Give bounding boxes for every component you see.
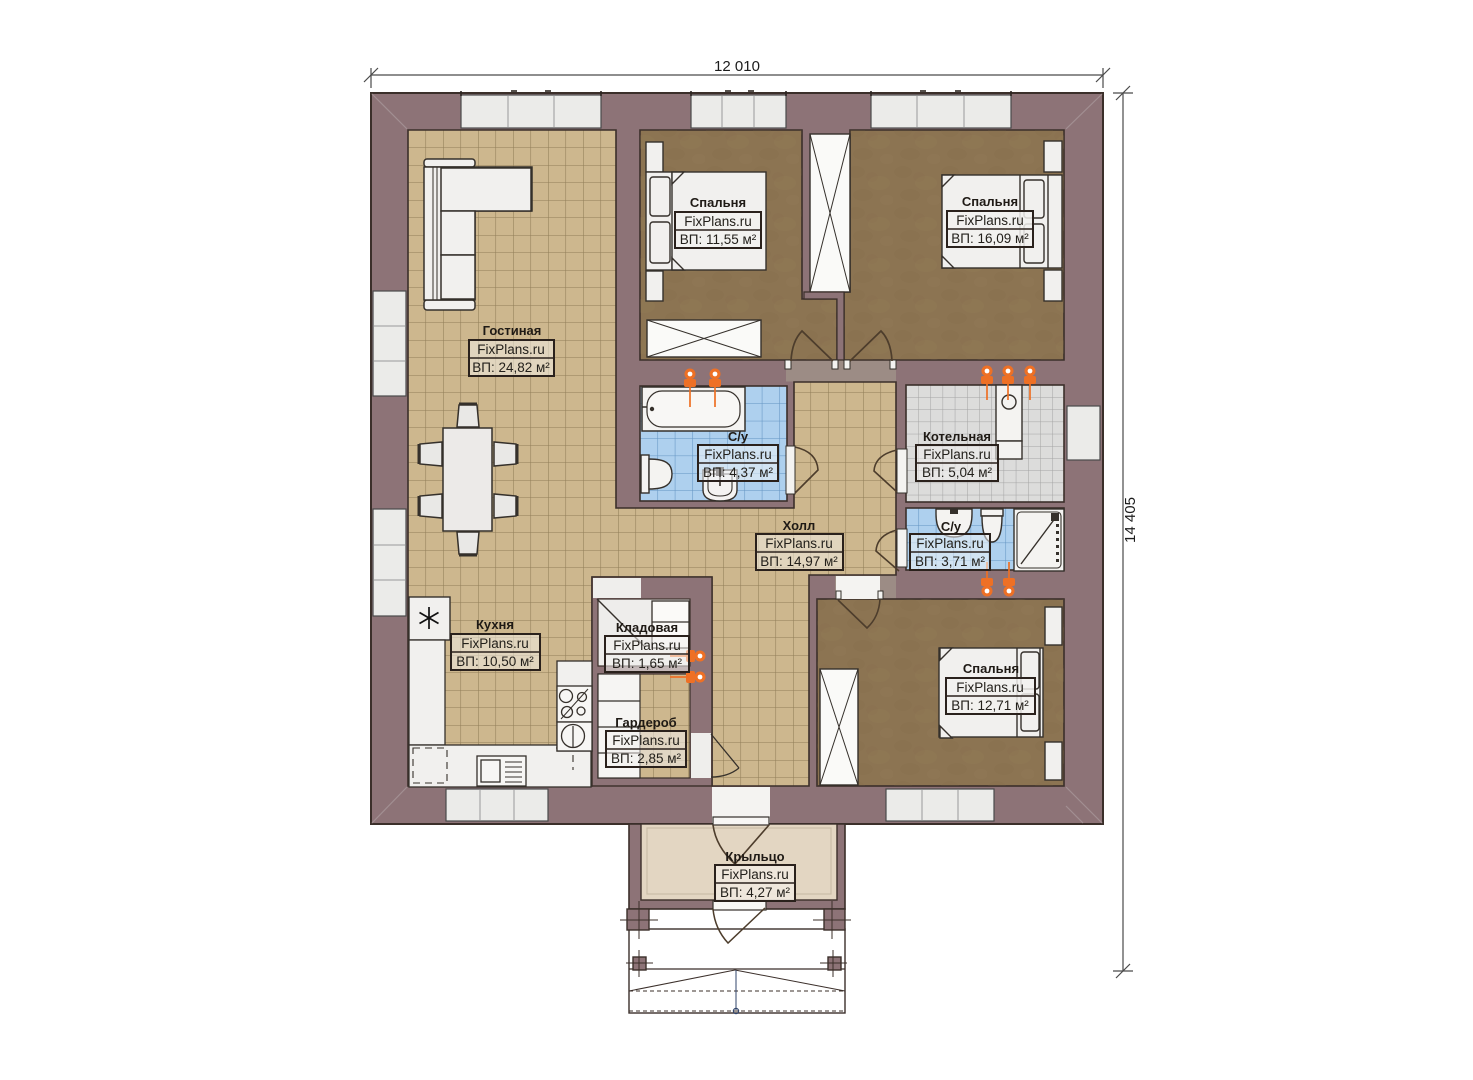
svg-text:Гардероб: Гардероб xyxy=(615,715,676,730)
svg-text:FixPlans.ru: FixPlans.ru xyxy=(612,733,680,748)
svg-text:FixPlans.ru: FixPlans.ru xyxy=(704,447,772,462)
svg-text:ВП: 16,09 м²: ВП: 16,09 м² xyxy=(951,231,1029,246)
svg-text:С/у: С/у xyxy=(728,429,749,444)
svg-text:FixPlans.ru: FixPlans.ru xyxy=(721,867,789,882)
svg-text:FixPlans.ru: FixPlans.ru xyxy=(684,214,752,229)
svg-text:Гостиная: Гостиная xyxy=(483,323,542,338)
svg-text:FixPlans.ru: FixPlans.ru xyxy=(956,213,1024,228)
svg-text:FixPlans.ru: FixPlans.ru xyxy=(613,638,681,653)
svg-text:ВП: 24,82 м²: ВП: 24,82 м² xyxy=(472,360,550,375)
svg-text:14 405: 14 405 xyxy=(1122,497,1139,543)
svg-text:Кладовая: Кладовая xyxy=(616,620,678,635)
svg-text:ВП: 2,85 м²: ВП: 2,85 м² xyxy=(611,751,682,766)
svg-text:ВП: 1,65 м²: ВП: 1,65 м² xyxy=(612,656,683,671)
svg-text:ВП: 5,04 м²: ВП: 5,04 м² xyxy=(922,465,993,480)
svg-text:Котельная: Котельная xyxy=(923,429,991,444)
svg-text:FixPlans.ru: FixPlans.ru xyxy=(765,536,833,551)
svg-text:ВП: 12,71 м²: ВП: 12,71 м² xyxy=(951,698,1029,713)
svg-text:ВП: 3,71 м²: ВП: 3,71 м² xyxy=(915,554,986,569)
svg-text:ВП: 11,55 м²: ВП: 11,55 м² xyxy=(680,232,757,247)
svg-text:FixPlans.ru: FixPlans.ru xyxy=(956,680,1024,695)
svg-text:12 010: 12 010 xyxy=(714,58,760,75)
svg-text:FixPlans.ru: FixPlans.ru xyxy=(916,536,984,551)
svg-text:С/у: С/у xyxy=(941,519,962,534)
svg-text:FixPlans.ru: FixPlans.ru xyxy=(923,447,991,462)
svg-text:ВП: 4,37 м²: ВП: 4,37 м² xyxy=(703,465,774,480)
svg-text:FixPlans.ru: FixPlans.ru xyxy=(461,636,529,651)
svg-text:Спальня: Спальня xyxy=(962,194,1018,209)
svg-text:FixPlans.ru: FixPlans.ru xyxy=(477,342,545,357)
svg-text:ВП: 10,50 м²: ВП: 10,50 м² xyxy=(456,654,534,669)
svg-text:Крыльцо: Крыльцо xyxy=(725,849,784,864)
svg-text:Спальня: Спальня xyxy=(690,195,746,210)
svg-text:Кухня: Кухня xyxy=(476,617,514,632)
svg-text:ВП: 4,27 м²: ВП: 4,27 м² xyxy=(720,885,791,900)
svg-text:Спальня: Спальня xyxy=(963,661,1019,676)
svg-text:Холл: Холл xyxy=(783,518,816,533)
svg-text:ВП: 14,97 м²: ВП: 14,97 м² xyxy=(760,554,838,569)
